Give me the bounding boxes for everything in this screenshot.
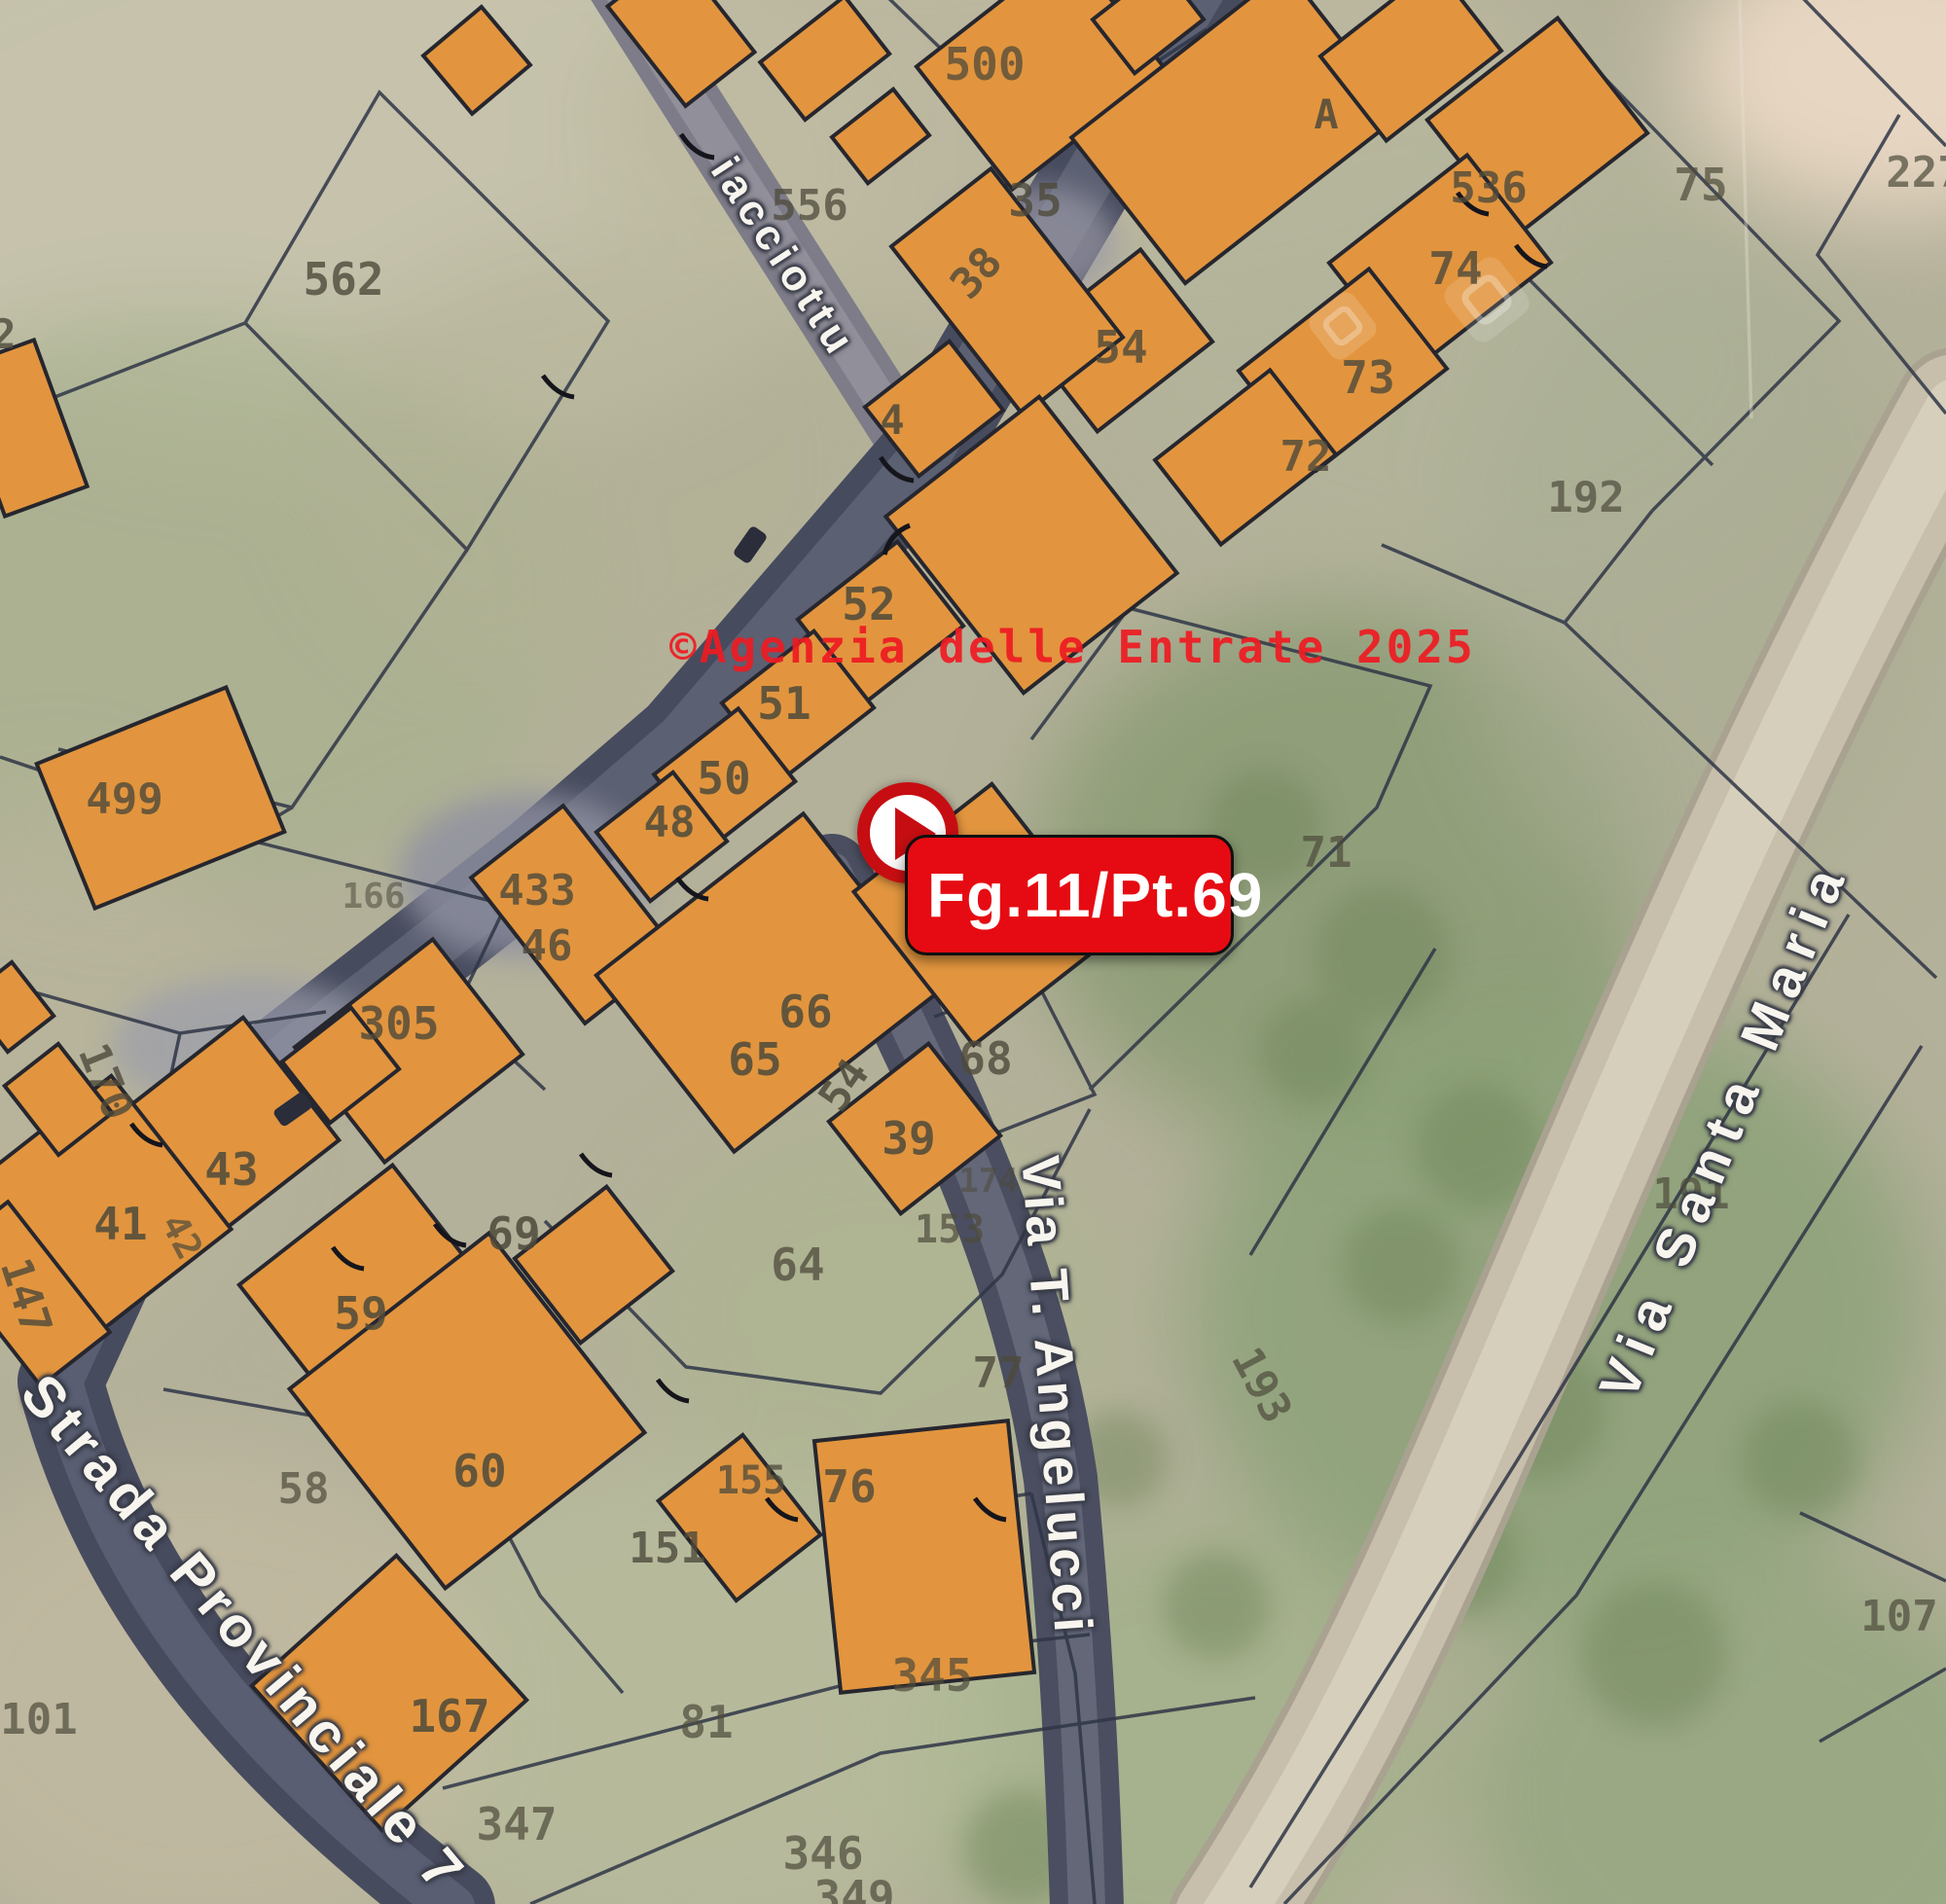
cadastral-map-viewport[interactable]: 56225003538544A5367522774737219255652515… <box>0 0 1946 1904</box>
parcel-marker-text: Fg.11/Pt.69 <box>927 859 1263 931</box>
copyright-watermark: ©Agenzia delle Entrate 2025 <box>669 621 1476 673</box>
parcel-marker-label[interactable]: Fg.11/Pt.69 <box>905 835 1234 955</box>
